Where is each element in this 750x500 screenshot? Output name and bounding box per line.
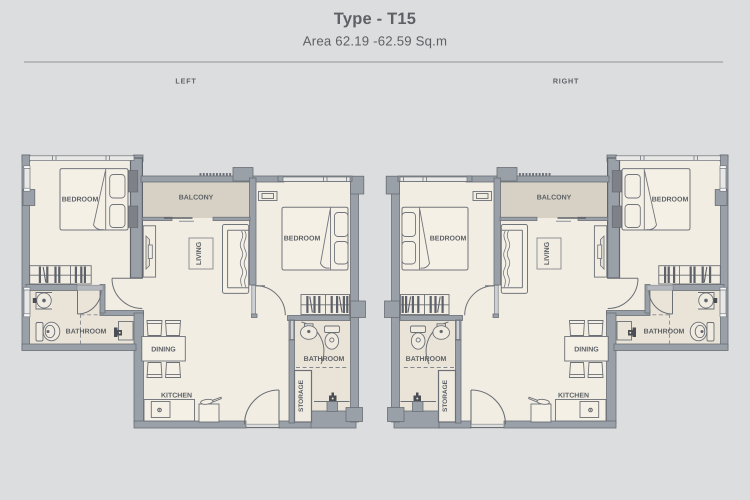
svg-text:KITCHEN: KITCHEN — [161, 393, 192, 400]
svg-text:RIGHT: RIGHT — [553, 77, 579, 86]
svg-text:BEDROOM: BEDROOM — [284, 236, 321, 243]
svg-text:DINING: DINING — [151, 347, 176, 354]
svg-text:BATHROOM: BATHROOM — [406, 356, 447, 363]
svg-text:BEDROOM: BEDROOM — [430, 236, 467, 243]
svg-text:STORAGE: STORAGE — [298, 379, 305, 412]
svg-text:BALCONY: BALCONY — [537, 195, 572, 202]
svg-text:STORAGE: STORAGE — [442, 379, 449, 412]
svg-text:Type - T15: Type - T15 — [334, 10, 416, 28]
svg-text:BALCONY: BALCONY — [179, 195, 214, 202]
svg-text:BATHROOM: BATHROOM — [304, 356, 345, 363]
svg-text:LIVING: LIVING — [196, 241, 203, 265]
svg-text:LEFT: LEFT — [175, 77, 196, 86]
svg-text:BEDROOM: BEDROOM — [62, 197, 99, 204]
svg-text:KITCHEN: KITCHEN — [558, 393, 589, 400]
svg-text:BATHROOM: BATHROOM — [644, 329, 685, 336]
svg-text:BEDROOM: BEDROOM — [652, 197, 689, 204]
svg-text:LIVING: LIVING — [544, 241, 551, 265]
svg-text:Area 62.19 -62.59 Sq.m: Area 62.19 -62.59 Sq.m — [303, 34, 447, 49]
svg-text:DINING: DINING — [574, 347, 599, 354]
svg-text:BATHROOM: BATHROOM — [66, 329, 107, 336]
